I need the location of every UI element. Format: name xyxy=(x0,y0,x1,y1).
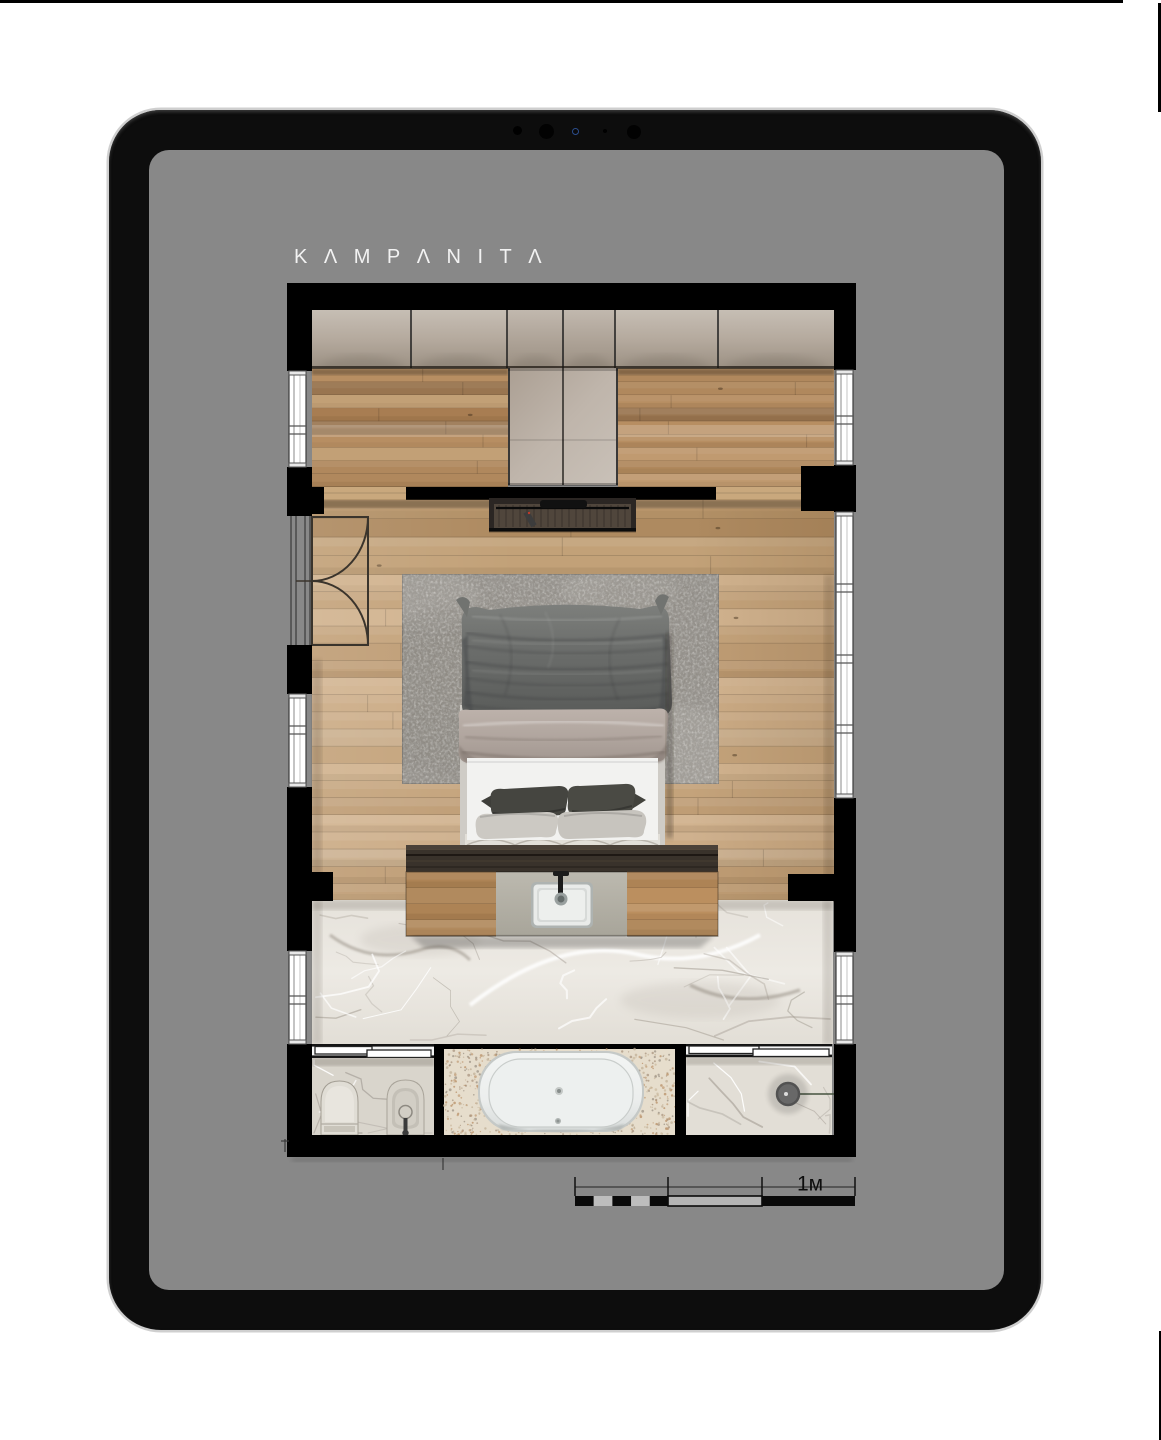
svg-text:1м: 1м xyxy=(797,1173,823,1196)
